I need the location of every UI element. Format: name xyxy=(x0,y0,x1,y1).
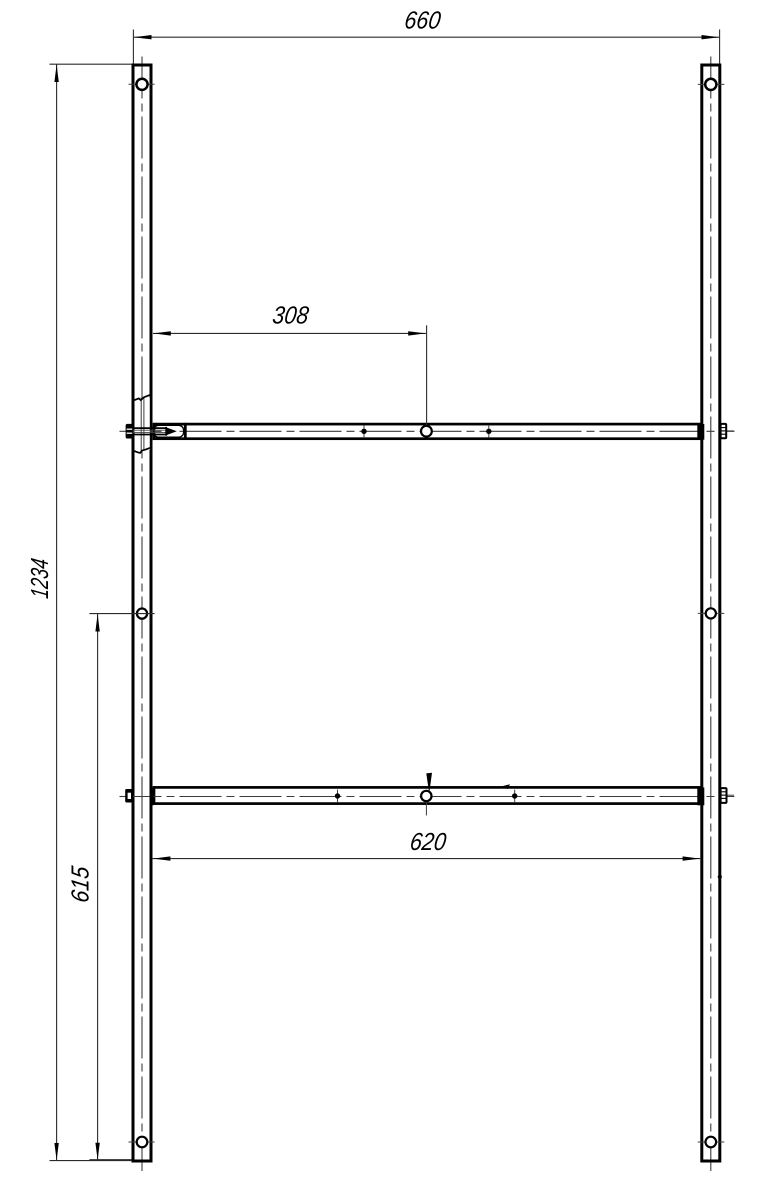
svg-text:1234: 1234 xyxy=(25,557,54,601)
svg-text:660: 660 xyxy=(403,6,443,34)
svg-text:308: 308 xyxy=(271,301,311,329)
svg-text:620: 620 xyxy=(408,828,448,856)
svg-text:615: 615 xyxy=(66,864,94,904)
